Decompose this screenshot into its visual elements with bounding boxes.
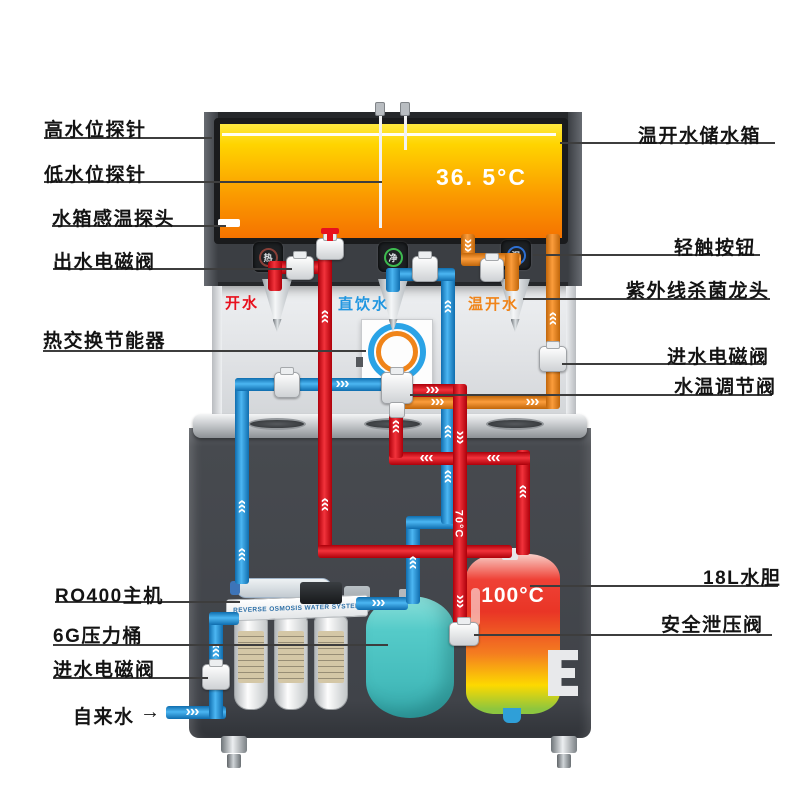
flow-arrow-icon: ›››: [441, 463, 455, 491]
label-warm-inlet-solenoid: 进水电磁阀: [667, 342, 770, 369]
flow-arrow-icon: ›››: [406, 549, 420, 577]
warm-water-tap-label: 温开水: [468, 293, 519, 314]
label-boiler-tank: 18L水胆: [703, 563, 781, 590]
filter-label: [318, 631, 344, 683]
left-foot: [221, 736, 247, 772]
label-tank-temp-sensor: 水箱感温探头: [52, 204, 175, 231]
direct-drink-valve: [412, 256, 438, 282]
flow-arrow-icon: ›››: [178, 705, 206, 719]
label-cold-inlet-solenoid: 进水电磁阀: [53, 655, 156, 682]
label-uv-faucet: 紫外线杀菌龙头: [626, 276, 770, 303]
probe-cap-long: [375, 102, 385, 116]
boiling-tap-stub: [268, 261, 282, 291]
label-safety-relief-valve: 安全泄压阀: [661, 610, 764, 637]
label-heat-exchanger: 热交换节能器: [43, 326, 166, 353]
pipe-temperature-label: 70°C: [452, 510, 464, 539]
tap-tip: [273, 319, 282, 332]
flow-arrow-icon: ›››: [516, 478, 530, 506]
label-tap-water: 自来水: [73, 702, 135, 729]
flow-arrow-icon: ›››: [364, 596, 392, 610]
exchanger-feed-pipe: [235, 378, 391, 391]
top-housing-right-edge: [568, 112, 582, 286]
water-temp-adjust-valve: [381, 372, 413, 404]
heat-exchanger-chip: [356, 357, 363, 367]
flow-arrow-icon: ›››: [461, 231, 475, 259]
tank-outlet-valve-body: [316, 238, 344, 260]
pure-button-ring: 净: [384, 248, 403, 267]
direct-drink-tap-label: 直饮水: [338, 293, 389, 314]
warm-tap-stub: [505, 253, 519, 291]
flow-arrow-icon: ›››: [318, 303, 332, 331]
filter-label: [278, 631, 304, 683]
warm-inlet-solenoid-valve: [539, 346, 567, 372]
right-foot: [551, 736, 577, 772]
water-dispenser-diagram: 36. 5°C 热 净 温 开水 直饮水 温开水: [0, 0, 800, 800]
flow-arrow-icon: ›››: [441, 293, 455, 321]
high-level-probe: [404, 116, 407, 150]
flow-arrow-icon: ›››: [413, 451, 441, 465]
filter-cartridge-2: [274, 616, 308, 710]
drip-slot-right: [486, 418, 544, 430]
flow-arrow-icon: ›››: [318, 491, 332, 519]
tap-tip: [511, 319, 520, 332]
low-level-probe: [379, 116, 382, 228]
water-level-line: [222, 133, 556, 136]
flow-arrow-icon: ›››: [235, 541, 249, 569]
tap-water-arrow: →: [140, 701, 160, 724]
probe-cap-short: [400, 102, 410, 116]
label-low-level-probe: 低水位探针: [44, 160, 147, 187]
label-temp-adjust-valve: 水温调节阀: [674, 372, 777, 399]
ro-pump: [300, 582, 342, 604]
tap-tip: [389, 319, 398, 332]
flow-arrow-icon: ›››: [328, 377, 356, 391]
ro-system-text: REVERSE OSMOSIS WATER SYSTEM: [233, 602, 361, 613]
flow-arrow-icon: ›››: [480, 451, 508, 465]
label-pressure-tank: 6G压力桶: [53, 621, 143, 648]
filter-cartridge-1: [234, 616, 268, 710]
heating-element-bracket: [548, 650, 578, 696]
flow-arrow-icon: ›››: [235, 493, 249, 521]
exchanger-feed-valve: [274, 372, 300, 398]
storage-tank-temperature: 36. 5°C: [436, 164, 527, 191]
label-high-level-probe: 高水位探针: [44, 115, 147, 142]
drip-slot-left: [248, 418, 306, 430]
boiler-temperature: 100°C: [466, 584, 560, 608]
filter-label: [238, 631, 264, 683]
direct-drink-tap-stub: [386, 268, 400, 292]
boiling-water-tap-label: 开水: [225, 292, 259, 313]
label-touch-button: 轻触按钮: [674, 233, 756, 260]
water-temp-adjust-stub: [389, 402, 405, 418]
flow-arrow-icon: ›››: [518, 395, 546, 409]
pressure-tank: [366, 596, 454, 718]
label-ro-main-unit: RO400主机: [55, 581, 164, 608]
flow-arrow-icon: ›››: [453, 587, 467, 615]
boiler-drain-stub: [503, 708, 521, 723]
filter-cartridge-3: [314, 616, 348, 710]
tap-panel-right-wall: [566, 286, 576, 416]
inlet-elbow-pipe: [209, 612, 239, 625]
label-outlet-solenoid: 出水电磁阀: [53, 247, 156, 274]
label-warm-storage-tank: 温开水储水箱: [638, 121, 761, 148]
flow-arrow-icon: ›››: [546, 305, 560, 333]
flow-arrow-icon: ›››: [453, 423, 467, 451]
warm-outlet-valve: [480, 258, 504, 282]
tank-outlet-valve-stem: [327, 233, 333, 241]
